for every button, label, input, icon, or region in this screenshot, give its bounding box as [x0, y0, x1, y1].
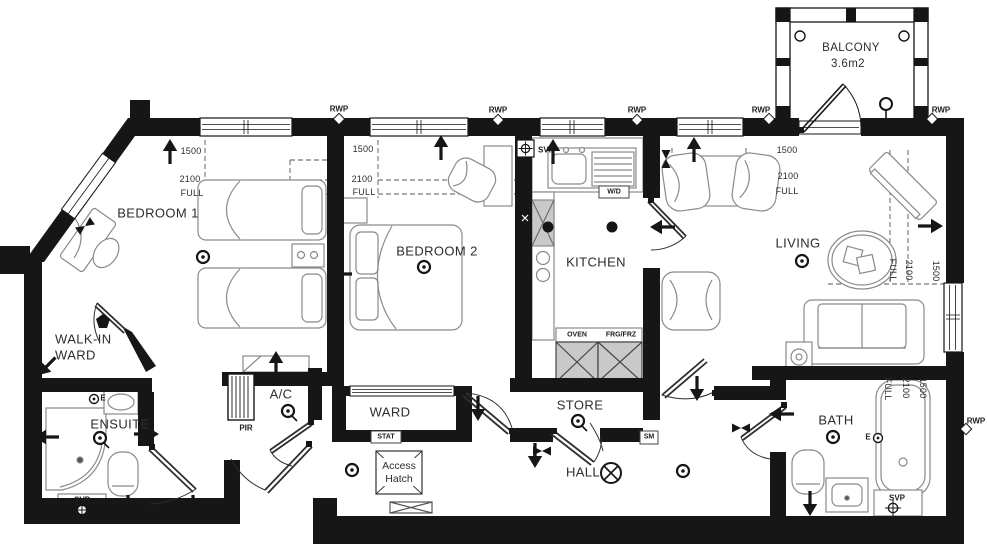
access-hatch-line1: Access [382, 460, 416, 472]
dim-full-bedroom1: FULL [181, 188, 204, 198]
pir-label: PIR [239, 424, 252, 433]
room-label-bath: BATH [818, 413, 853, 428]
dim-full-bath: FULL [883, 378, 893, 401]
room-label-store: STORE [557, 398, 604, 413]
room-label-hall: HALL [566, 465, 600, 480]
dim-full-living: FULL [776, 186, 799, 196]
rwp-label-3: RWP [628, 106, 647, 115]
dim-1500-bedroom2: 1500 [353, 144, 374, 154]
room-label-ensuite: ENSUITE [90, 417, 149, 432]
rwp-label-2: RWP [489, 106, 508, 115]
room-label-balcony: BALCONY [822, 42, 880, 54]
diagonal-window [62, 153, 116, 218]
shaver-label-bath: E [865, 433, 870, 442]
dim-2100-bath: 2100 [901, 378, 911, 399]
dim-1500-living: 1500 [777, 145, 798, 155]
room-label-ward: WARD [370, 405, 411, 420]
balcony-structure [776, 8, 928, 134]
dim-full-living-right: FULL [888, 259, 898, 282]
frg-frz-label: FRG/FRZ [606, 332, 636, 339]
shaver-label-ensuite: E [100, 394, 105, 403]
room-label-kitchen: KITCHEN [566, 255, 626, 270]
dim-1500-bedroom1: 1500 [181, 146, 202, 156]
svp-label-kitchen: SVP [538, 146, 554, 155]
sm-label: SM [644, 434, 655, 441]
room-label-walkin-line1: WALK-IN [55, 332, 112, 347]
balcony-area-label: 3.6m2 [831, 58, 865, 70]
floorplan: BEDROOM 1 BEDROOM 2 KITCHEN LIVING WALK-… [0, 0, 987, 547]
dim-2100-bedroom2: 2100 [352, 174, 373, 184]
dim-full-bedroom2: FULL [353, 187, 376, 197]
room-label-bedroom1: BEDROOM 1 [117, 206, 199, 221]
dim-1500-bath: 1500 [918, 378, 928, 399]
room-label-ac: A/C [270, 387, 293, 402]
rwp-label-5: RWP [932, 106, 951, 115]
access-hatch-line2: Hatch [385, 473, 412, 485]
dim-1500-living-right: 1500 [931, 261, 941, 282]
svp-label-ensuite: SVP [74, 496, 90, 505]
dim-2100-bedroom1: 2100 [180, 174, 201, 184]
svp-label-bath: SVP [889, 494, 905, 503]
stat-label: STAT [377, 434, 394, 441]
rwp-label-1: RWP [330, 105, 349, 114]
room-label-living: LIVING [775, 236, 820, 251]
oven-label: OVEN [567, 332, 587, 339]
dim-2100-living-right: 2100 [904, 260, 914, 281]
wd-label: W/D [607, 189, 621, 196]
rwp-label-6: RWP [967, 417, 986, 426]
room-label-walkin-line2: WARD [55, 348, 96, 363]
rwp-label-4: RWP [752, 106, 771, 115]
room-label-bedroom2: BEDROOM 2 [396, 244, 478, 259]
floorplan-graphic [0, 0, 987, 547]
dim-2100-living: 2100 [778, 171, 799, 181]
